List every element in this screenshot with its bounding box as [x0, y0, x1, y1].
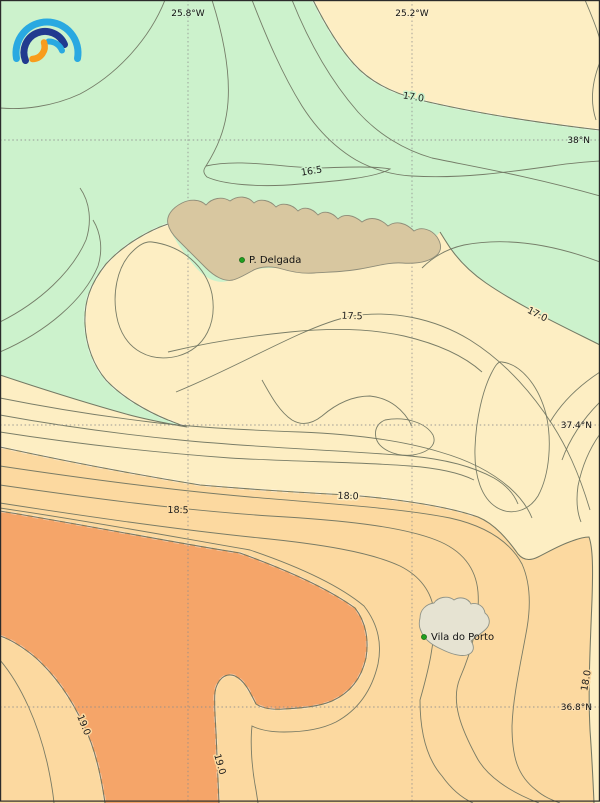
lat-label-36-8N: 36.8°N — [561, 703, 592, 713]
isotherm-label-18-0-a: 18.0 — [337, 491, 359, 503]
isotherm-label-18-5: 18.5 — [167, 505, 188, 516]
city-label-vila-do-porto: Vila do Porto — [431, 632, 494, 643]
lat-label-38N: 38°N — [567, 136, 590, 146]
city-marker-vila-do-porto — [421, 634, 426, 639]
city-marker-p-delgada — [239, 257, 244, 262]
temperature-bands — [0, 0, 600, 803]
lon-label-25-2W: 25.2°W — [395, 9, 429, 19]
map-canvas: P. Delgada Vila do Porto 25.8°W 25.2°W 3… — [0, 0, 600, 803]
lat-label-37-4N: 37.4°N — [561, 421, 592, 431]
city-label-p-delgada: P. Delgada — [249, 255, 301, 266]
lon-label-25-8W: 25.8°W — [171, 9, 205, 19]
sst-contour-map: P. Delgada Vila do Porto 25.8°W 25.2°W 3… — [0, 0, 600, 803]
isotherm-label-17-5: 17.5 — [341, 311, 363, 323]
